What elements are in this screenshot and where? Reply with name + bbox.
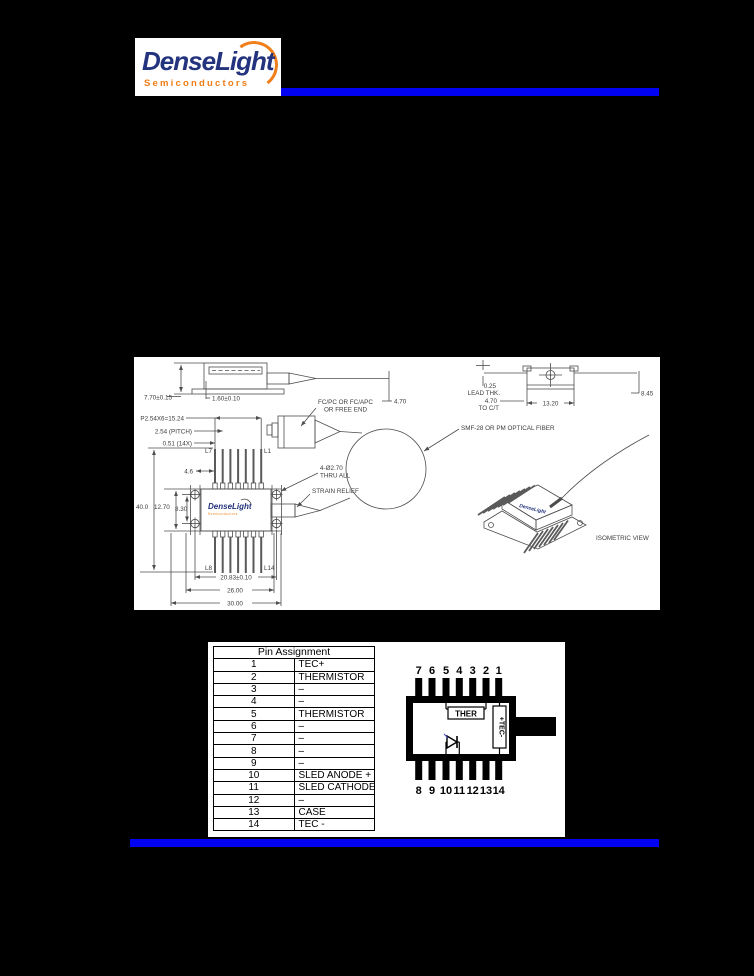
note-fiber-type: SMF-28 OR PM OPTICAL FIBER <box>461 425 555 432</box>
dim-side-base: 1.60±0.10 <box>212 396 240 403</box>
dim-lead-width: 0.51 (14X) <box>163 441 192 448</box>
pin-number: 10 <box>440 785 452 797</box>
top-view: DenseLight Semiconductors <box>136 416 359 608</box>
package-logo: DenseLight Semiconductors <box>208 499 252 516</box>
tec-label: +TEC- <box>498 717 505 738</box>
dim-pitch: 2.54 (PITCH) <box>155 429 192 436</box>
dim-hole-spacing-h: 20.83±0.10 <box>220 575 252 582</box>
table-row: 13CASE <box>214 806 375 818</box>
table-row: 4– <box>214 696 375 708</box>
dim-side-height: 7.70±0.15 <box>144 395 172 402</box>
table-row: 7– <box>214 733 375 745</box>
pin-assignment-table: Pin Assignment 1TEC+ 2THERMISTOR 3– 4– 5… <box>213 646 375 831</box>
pin-number: 5 <box>443 665 449 677</box>
table-row: 1TEC+ <box>214 659 375 671</box>
dim-end-height: 8.45 <box>641 391 654 398</box>
dim-side-fiber: 4.70 <box>394 399 407 406</box>
logo-subtitle-text: Semiconductors <box>144 78 249 89</box>
dim-end-width: 13.20 <box>543 401 559 408</box>
end-view: 0.25 LEAD THK. 4.70 TO C/T 13.20 8.45 <box>468 360 654 412</box>
dim-pin-row: P2.54X6=15.24 <box>140 416 184 423</box>
diagram-package-body <box>410 700 513 758</box>
pin-number: 12 <box>467 785 479 797</box>
package-logo-subtitle: Semiconductors <box>208 512 238 516</box>
pin-label-l8: L8 <box>205 565 213 572</box>
dim-hole-spacing-v: 8.30 <box>175 506 188 513</box>
table-row: 10SLED ANODE + <box>214 769 375 781</box>
dim-lead-thk-label: LEAD THK. <box>468 390 501 397</box>
table-row: 2THERMISTOR <box>214 671 375 683</box>
table-row: 6– <box>214 720 375 732</box>
table-row: 3– <box>214 683 375 695</box>
pin-number: 3 <box>470 665 476 677</box>
pin-label-l14: L14 <box>264 565 275 572</box>
pin-number: 9 <box>429 785 435 797</box>
thermistor-label: THER <box>455 710 477 719</box>
logo-brand-text: DenseLight <box>142 46 274 77</box>
table-row: 12– <box>214 794 375 806</box>
dim-to-ct-value: 4.70 <box>485 398 498 405</box>
pin-number: 13 <box>480 785 492 797</box>
dim-flange-width: 26.00 <box>227 588 243 595</box>
pin-number: 14 <box>493 785 506 797</box>
package-outline-drawing: 7.70±0.15 1.60±0.10 4.70 <box>134 357 660 610</box>
pin-number: 2 <box>483 665 489 677</box>
diagram-fiber-stub <box>516 717 556 736</box>
pin-number: 7 <box>416 665 422 677</box>
dim-lead-length: 4.6 <box>184 469 193 476</box>
pin-number: 6 <box>429 665 435 677</box>
table-row: 5THERMISTOR <box>214 708 375 720</box>
pin-number: 1 <box>496 665 502 677</box>
table-row: 14TEC - <box>214 819 375 831</box>
pin-label-l1: L1 <box>264 448 272 455</box>
dim-to-ct-label: TO C/T <box>478 405 499 412</box>
pin-assignment-panel: Pin Assignment 1TEC+ 2THERMISTOR 3– 4– 5… <box>208 642 565 837</box>
package-logo-brand: DenseLight <box>208 502 252 511</box>
note-ferrule-2: OR FREE END <box>324 407 367 414</box>
package-pins <box>215 449 261 573</box>
pin-number: 11 <box>453 785 465 797</box>
iso-caption: ISOMETRIC VIEW <box>596 535 649 542</box>
company-logo: DenseLight Semiconductors <box>135 38 281 96</box>
table-row: 9– <box>214 757 375 769</box>
dim-overall: 40.0 <box>136 504 149 511</box>
footer-rule <box>130 839 659 847</box>
iso-logo-brand: DenseLight <box>519 503 547 515</box>
fiber-assembly: FC/PC OR FC/APC OR FREE END SMF-28 OR PM… <box>267 399 555 511</box>
datasheet-page: DenseLight Semiconductors <box>0 0 754 976</box>
pin-label-l7: L7 <box>205 448 213 455</box>
note-holes-1: 4-Ø2.70 <box>320 465 343 472</box>
table-row: 11SLED CATHODE - <box>214 782 375 794</box>
isometric-view: DenseLight ISOMETRIC VIEW <box>478 435 649 553</box>
table-row: 8– <box>214 745 375 757</box>
note-strain-relief: STRAIN RELIEF <box>312 488 359 495</box>
pin-number: 4 <box>456 665 463 677</box>
pin-table-title: Pin Assignment <box>214 647 375 659</box>
dim-body-length: 30.00 <box>227 601 243 608</box>
dim-lead-thk-value: 0.25 <box>484 383 497 390</box>
pin-number: 8 <box>416 785 422 797</box>
pinout-diagram: 7 6 5 4 3 2 1 <box>400 654 562 806</box>
dim-body-width: 12.70 <box>154 504 170 511</box>
note-ferrule-1: FC/PC OR FC/APC <box>318 399 373 406</box>
